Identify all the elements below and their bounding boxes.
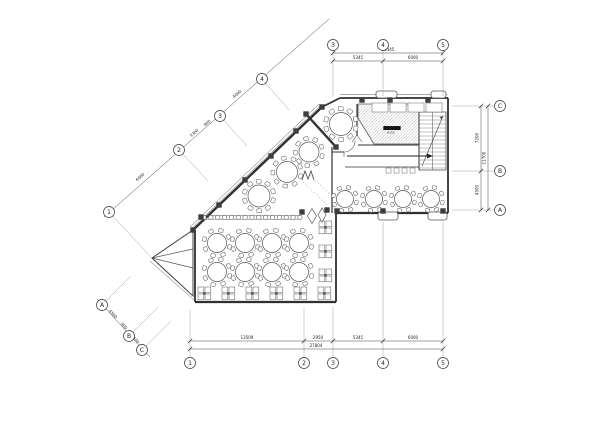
svg-text:C: C (498, 103, 502, 110)
grid-bubble: 5 (438, 358, 449, 369)
svg-text:3: 3 (331, 42, 335, 49)
dimension-label: 27804 (310, 343, 323, 348)
grid-bubble: 3 (215, 111, 226, 122)
grid-bubble: B (124, 331, 135, 342)
dimension-label: 6000 (408, 335, 419, 340)
svg-text:B: B (498, 168, 502, 175)
svg-text:5: 5 (441, 360, 445, 367)
grid-bubble: 2 (174, 145, 185, 156)
svg-text:C: C (140, 347, 144, 354)
svg-text:5: 5 (441, 42, 445, 49)
grid-bubble: 3 (328, 40, 339, 51)
svg-text:4: 4 (381, 42, 385, 49)
svg-text:1: 1 (188, 360, 192, 367)
dimension-label: 6000 (408, 55, 419, 60)
grid-bubble: A (495, 205, 506, 216)
dimension-label: 7200 (475, 132, 480, 143)
grid-bubble: 4 (378, 358, 389, 369)
svg-text:2: 2 (177, 147, 181, 154)
dimension-label: 11700 (482, 151, 487, 164)
grid-bubble: 3 (328, 358, 339, 369)
dimension-label: 5345 (353, 335, 364, 340)
svg-text:4: 4 (381, 360, 385, 367)
staircase (419, 112, 446, 170)
grid-bubble: C (137, 345, 148, 356)
dimension-label: 5345 (353, 55, 364, 60)
svg-text:2: 2 (302, 360, 306, 367)
grid-bubble: 1 (104, 207, 115, 218)
grid-bubble: A (97, 300, 108, 311)
svg-text:3: 3 (218, 113, 222, 120)
svg-text:3: 3 (331, 360, 335, 367)
baluster-partition (202, 215, 302, 219)
svg-text:1: 1 (107, 209, 111, 216)
dimension-label: 2950 (313, 335, 324, 340)
stage-sublabel-text: 8155 (387, 131, 395, 135)
floor-plan-svg: 5345600011345720045001170013509295053456… (0, 0, 600, 424)
grid-bubble: 4 (257, 74, 268, 85)
grid-bubble: 1 (185, 358, 196, 369)
grid-bubble: 2 (299, 358, 310, 369)
floor-plan-canvas: 5345600011345720045001170013509295053456… (0, 0, 600, 424)
grid-bubble: B (495, 166, 506, 177)
svg-text:B: B (127, 333, 131, 340)
grid-bubble: C (495, 101, 506, 112)
dimension-label: 13509 (241, 335, 254, 340)
grid-bubble: 5 (438, 40, 449, 51)
dimension-label: 4500 (475, 184, 480, 195)
grid-bubble: 4 (378, 40, 389, 51)
svg-text:4: 4 (260, 76, 264, 83)
